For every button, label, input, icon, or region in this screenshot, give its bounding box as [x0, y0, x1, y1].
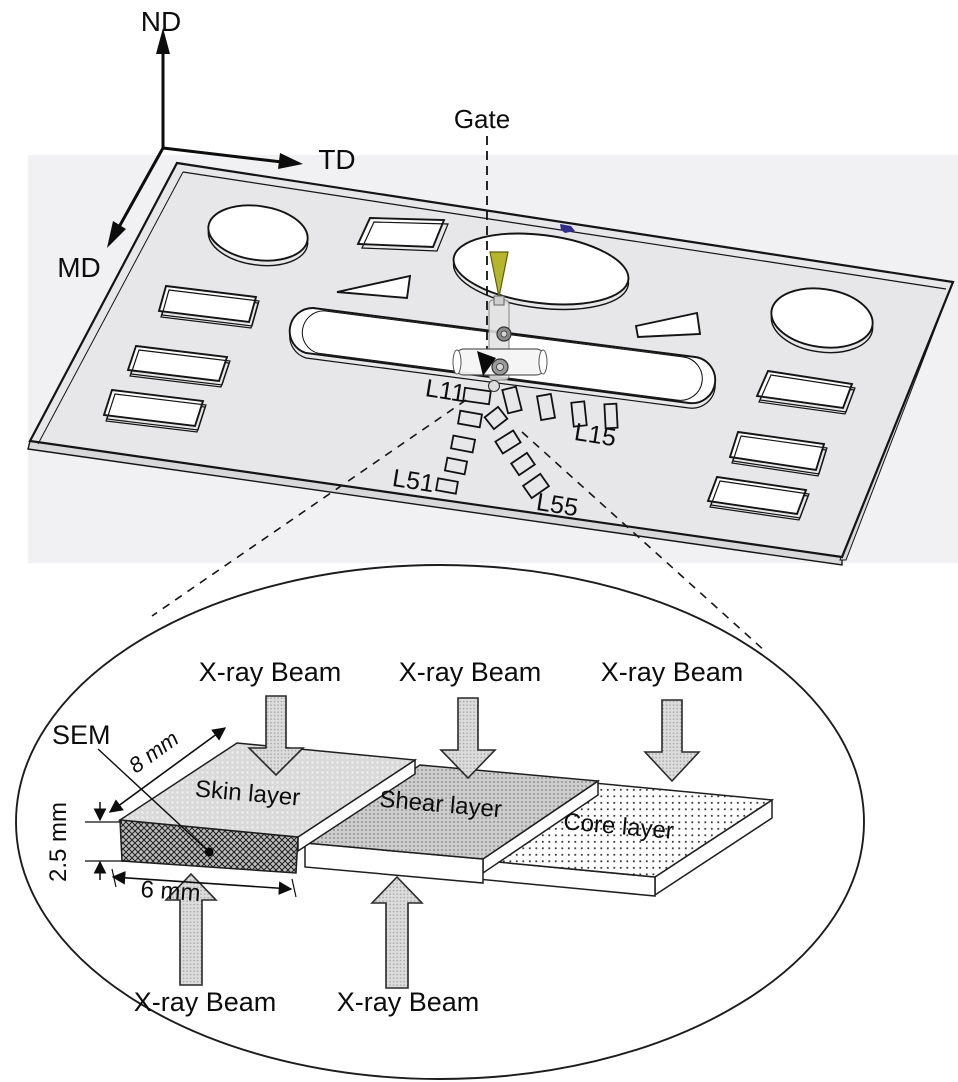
xray-beam-label-top-2: X-ray Beam	[399, 657, 542, 687]
xray-beam-label-top-3: X-ray Beam	[601, 657, 744, 687]
dim-2p5mm-label: 2.5 mm	[45, 802, 72, 882]
gate-tip-disc	[489, 381, 500, 392]
gate-flange-upper-hub	[501, 331, 507, 337]
xray-beam-label-bottom-1: X-ray Beam	[134, 987, 277, 1017]
sem-spot-dot	[205, 848, 214, 857]
gate-label: Gate	[454, 104, 510, 134]
dim-6mm-label: 6 mm	[140, 876, 202, 907]
xray-beam-label-bottom-2: X-ray Beam	[337, 987, 480, 1017]
gate-nozzle	[494, 296, 504, 305]
gate-flange-lower-hub	[497, 364, 504, 371]
md-axis-label: MD	[57, 252, 101, 283]
runner-end-left	[453, 350, 461, 374]
xray-beam-label-top-1: X-ray Beam	[199, 657, 342, 687]
nd-axis-label: ND	[141, 6, 181, 37]
sem-label: SEM	[52, 720, 111, 750]
runner-end-right	[539, 350, 547, 374]
figure-page: L11 L15 L51 L55 ND TD MD Gate	[0, 0, 958, 1082]
specimen-figure: L11 L15 L51 L55 ND TD MD Gate	[0, 0, 958, 1082]
td-axis-label: TD	[318, 144, 355, 175]
